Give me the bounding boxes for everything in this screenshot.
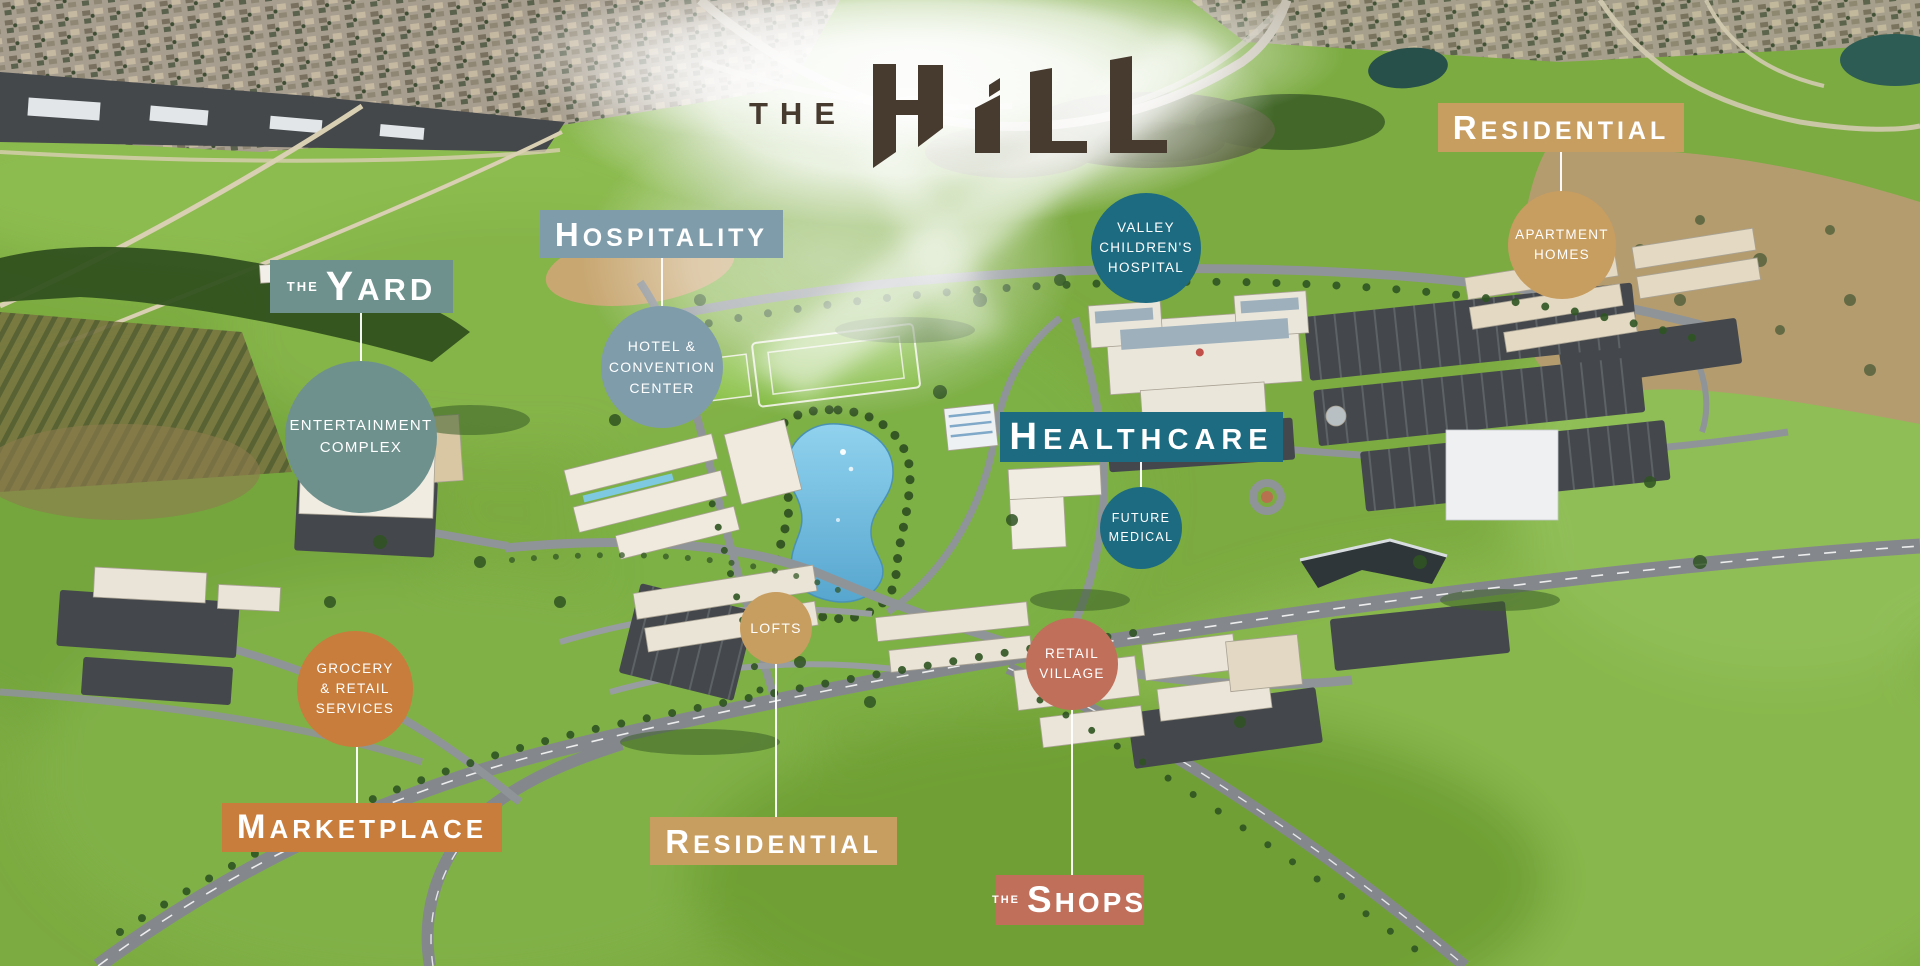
callout-entertainment-complex: ENTERTAINMENT COMPLEX [285, 361, 437, 513]
connector-hospitality [661, 258, 663, 307]
banner-prefix: THE [287, 280, 319, 293]
hill-wordmark-logo [865, 55, 1175, 180]
connector-healthcare [1140, 462, 1142, 488]
callout-future-medical: FUTURE MEDICAL [1100, 487, 1182, 569]
banner-label: HEALTHCARE [1009, 418, 1273, 456]
callout-lofts: LOFTS [740, 592, 812, 664]
connector-the-shops [1071, 709, 1073, 875]
callout-apartment-homes: APARTMENT HOMES [1508, 191, 1616, 299]
callout-valley-childrens-hospital: VALLEY CHILDREN'S HOSPITAL [1091, 193, 1201, 303]
banner-label: YARD [326, 266, 436, 307]
connector-residential-north [1560, 152, 1562, 192]
banner-label: HOSPITALITY [555, 218, 768, 251]
connector-residential-south [775, 660, 777, 817]
banner-residential-north: RESIDENTIAL [1438, 103, 1684, 152]
banner-marketplace: MARKETPLACE [222, 803, 502, 852]
the-hill-site-plan: THE RESIDENTIAL HOSPITALITY THE YARD [0, 0, 1920, 966]
callout-retail-village: RETAIL VILLAGE [1026, 618, 1118, 710]
connector-marketplace [356, 746, 358, 803]
banner-hospitality: HOSPITALITY [540, 210, 783, 258]
banner-label: SHOPS [1027, 882, 1146, 919]
callout-grocery-retail-services: GROCERY & RETAIL SERVICES [297, 631, 413, 747]
logo-the-text: THE [746, 98, 850, 129]
banner-prefix: THE [992, 895, 1020, 906]
callout-hotel-convention-center: HOTEL & CONVENTION CENTER [601, 306, 723, 428]
connector-the-yard [360, 313, 362, 362]
banner-the-yard: THE YARD [270, 260, 453, 313]
banner-label: RESIDENTIAL [665, 825, 881, 858]
banner-label: MARKETPLACE [237, 810, 487, 844]
banner-label: RESIDENTIAL [1453, 111, 1669, 144]
banner-residential-south: RESIDENTIAL [650, 817, 897, 865]
banner-the-shops: THE SHOPS [995, 875, 1143, 925]
banner-healthcare: HEALTHCARE [1000, 412, 1283, 462]
